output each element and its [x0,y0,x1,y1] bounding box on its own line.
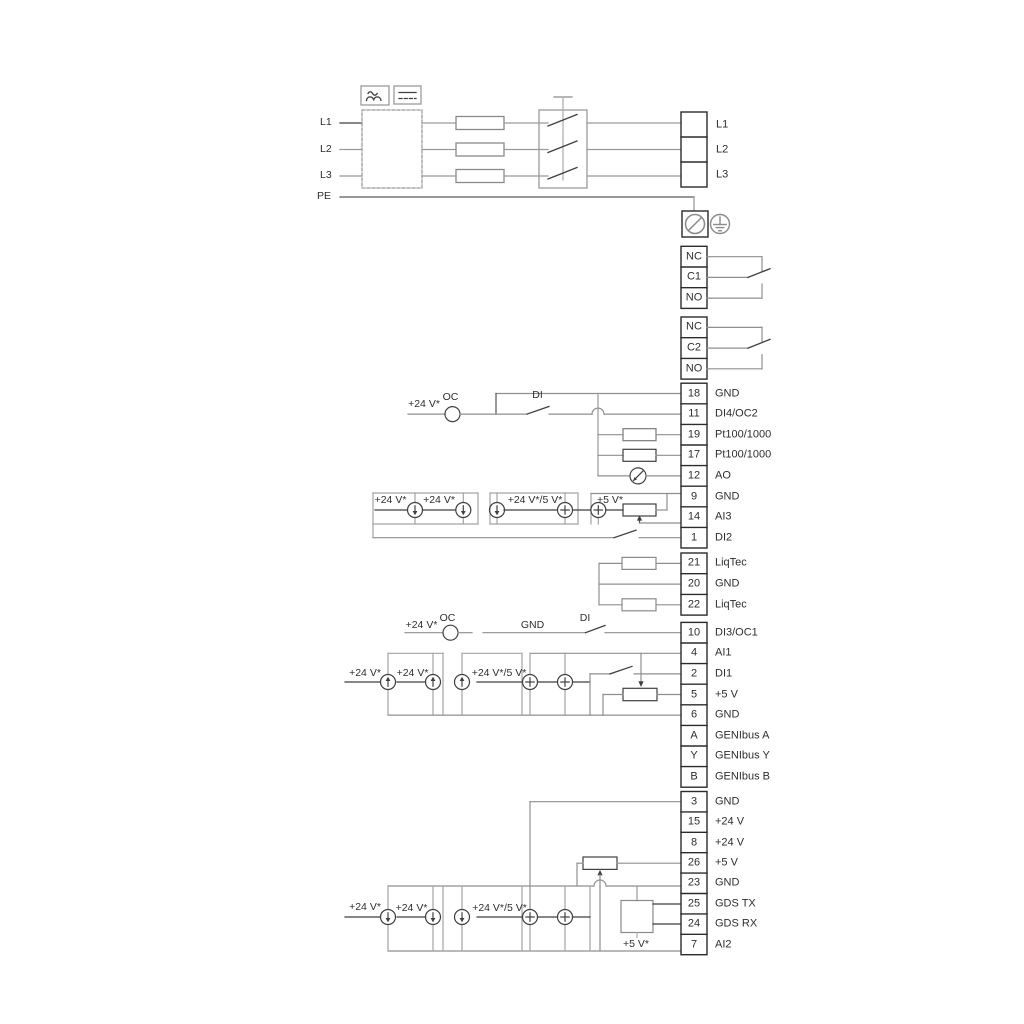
terminal-label: GND [715,579,739,590]
terminal-label: GDS RX [715,919,757,930]
sensor2-supply-label: +24 V* [397,668,429,679]
terminal-number: A [690,730,697,741]
terminal-number: 6 [691,710,697,721]
relay2-c2: C2 [687,343,701,354]
relay1-no: NO [686,293,703,304]
sensor2-supply-label: +24 V* [396,903,428,914]
terminal-label: +24 V [715,837,744,848]
open-collector-label: OC [443,392,459,403]
terminal-number: 15 [688,817,700,828]
digital-input-label: DI [532,390,543,401]
di4-switch-icon [527,407,549,415]
sensor1-supply-label: +24 V* [349,667,381,678]
terminal-label: Pt100/1000 [715,429,771,440]
sensor3-supply-label: +24 V*/5 V* [508,495,563,506]
terminal-label: LiqTec [715,599,747,610]
pt100-resistor-icon [623,429,656,441]
liqtec-resistor-icon [622,599,656,611]
pt100-resistor-icon [623,449,656,461]
gds-module-icon [621,886,681,938]
relay1-c1: C1 [687,272,701,283]
gds-supply-label: +5 V* [623,938,649,949]
relay2-no: NO [686,363,703,374]
terminal-number: 20 [688,579,700,590]
terminal-label: GND [715,878,739,889]
terminal-number: 4 [691,648,697,659]
dc-symbol-icon [394,86,421,104]
terminal-label: GDS TX [715,898,756,909]
terminal-label: GND [715,796,739,807]
relay1-contact-icon [707,257,762,298]
di3-switch-icon [586,626,606,633]
rectifier-box [362,110,422,188]
relay2-contact-icon [707,327,762,368]
sensor-row3 [345,802,681,951]
terminal-label: GND [715,388,739,399]
analog-output-meter-icon [630,468,646,484]
terminal-number: 1 [691,532,697,543]
terminal-label: AO [715,470,731,481]
terminal-label: +5 V [715,857,738,868]
open-collector-icon [445,407,460,422]
contactor-icon [539,97,587,188]
sensor3-supply-label: +24 V*/5 V* [472,668,527,679]
gnd-wire-label: GND [521,619,544,630]
terminal-label: DI2 [715,532,732,543]
terminal-number: 10 [688,627,700,638]
terminal-number: 8 [691,837,697,848]
terminal-number: 23 [688,878,700,889]
digital-input-label: DI [580,612,591,623]
supply-24v-label: +24 V* [408,399,440,410]
out-l3-label: L3 [716,170,728,181]
terminal-label: AI1 [715,648,732,659]
wiring-layer [0,0,1024,1024]
open-collector-icon [443,625,458,640]
ai3-potentiometer-icon [623,494,681,524]
terminal-number: 21 [688,558,700,569]
ai1-potentiometer-icon [603,653,681,715]
terminal-number: 18 [688,388,700,399]
terminal-label: DI1 [715,668,732,679]
terminal-number: 24 [688,919,700,930]
pe-label: PE [317,191,331,202]
terminal-label: DI3/OC1 [715,627,758,638]
terminal-number: 14 [688,512,700,523]
io1-wiring [408,394,681,484]
liqtec-wiring [599,557,681,610]
phase-l3-label: L3 [320,170,332,181]
terminal-number: 26 [688,857,700,868]
terminal-label: LiqTec [715,558,747,569]
open-collector-label: OC [440,612,456,623]
terminal-number: 5 [691,689,697,700]
power-section [340,86,730,237]
terminal-number: 25 [688,898,700,909]
sensor3-supply-label: +24 V*/5 V* [472,903,527,914]
out-l2-label: L2 [716,145,728,156]
ac-symbol-icon [361,86,389,105]
terminal-label: AI3 [715,512,732,523]
terminal-number: 11 [688,409,699,420]
terminal-label: GENIbus A [715,730,769,741]
relay2-nc: NC [686,322,702,333]
earth-ground-icon [711,215,730,234]
phase-l2-label: L2 [320,143,332,154]
phase-l1-label: L1 [320,117,332,128]
wiring-diagram: L1 L2 L3 PE L1 L2 L3 NC C1 NO NC C2 NO 1… [0,0,1024,1024]
terminal-label: GENIbus Y [715,751,770,762]
fuse-icon [456,117,504,183]
terminal-number: 12 [688,470,700,481]
terminal-label: GND [715,710,739,721]
sensor2-supply-label: +24 V* [423,495,455,506]
terminal-number: B [690,771,697,782]
terminal-number: 2 [691,668,697,679]
terminal-label: +5 V [715,689,738,700]
di1-switch-icon [610,666,632,674]
terminal-number: 9 [691,491,697,502]
terminal-label: +24 V [715,817,744,828]
supply-24v-label: +24 V* [406,619,438,630]
terminal-number: 17 [688,450,700,461]
terminal-label: Pt100/1000 [715,450,771,461]
terminal-number: 3 [691,796,697,807]
terminal-number: 19 [688,429,700,440]
power-out-block [681,112,707,187]
out-l1-label: L1 [716,120,728,131]
sensor4-supply-label: +5 V* [597,495,623,506]
terminal-label: GENIbus B [715,771,770,782]
sensor-row2 [345,653,681,715]
screw-terminal-icon [682,211,708,237]
terminal-number: 22 [688,599,700,610]
terminal-label: GND [715,491,739,502]
terminal-label: DI4/OC2 [715,409,758,420]
relay1-nc: NC [686,251,702,262]
sensor1-supply-label: +24 V* [375,495,407,506]
di2-switch-icon [614,530,636,538]
sensor1-supply-label: +24 V* [349,902,381,913]
terminal-number: 7 [691,939,697,950]
liqtec-resistor-icon [622,557,656,569]
terminal-number: Y [690,751,697,762]
terminal-label: AI2 [715,939,732,950]
